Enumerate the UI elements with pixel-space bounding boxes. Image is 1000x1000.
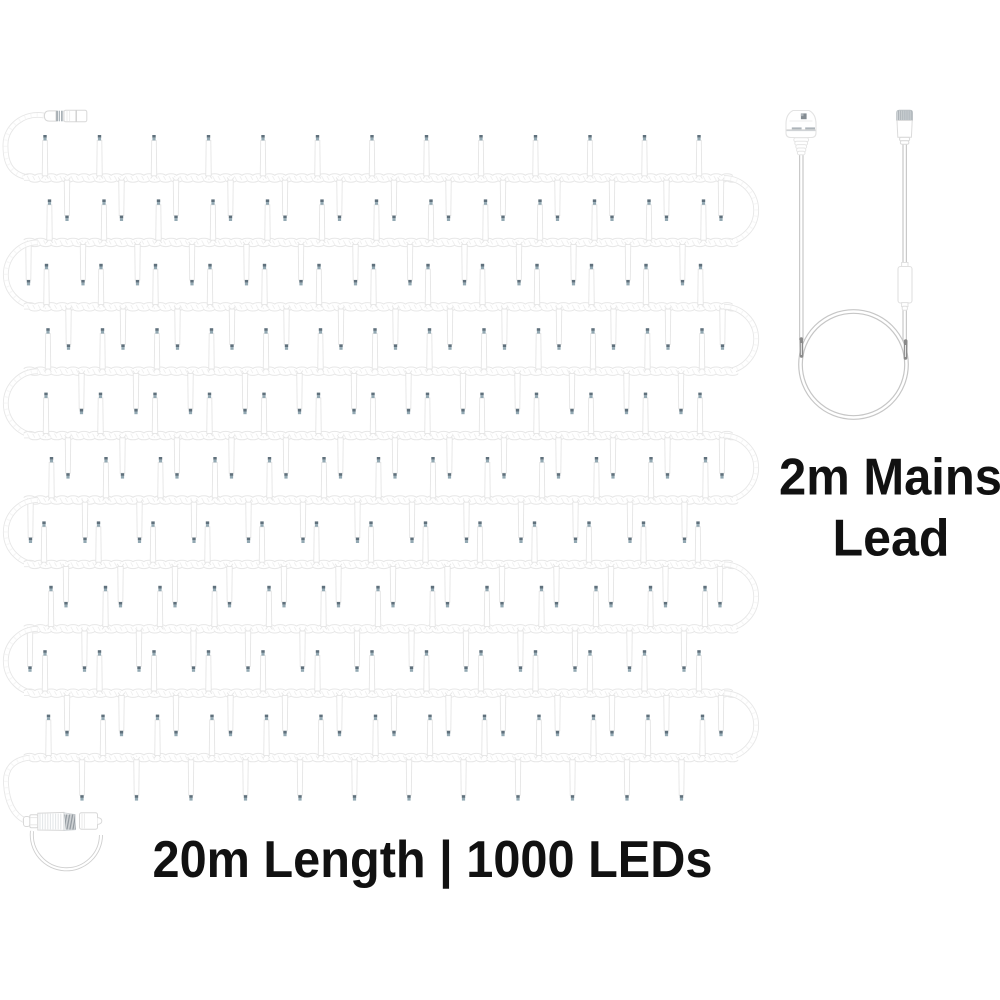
svg-text:2m Mains: 2m Mains — [779, 448, 1000, 506]
svg-text:Lead: Lead — [833, 509, 950, 567]
svg-text:20m Length | 1000 LEDs: 20m Length | 1000 LEDs — [153, 830, 713, 889]
